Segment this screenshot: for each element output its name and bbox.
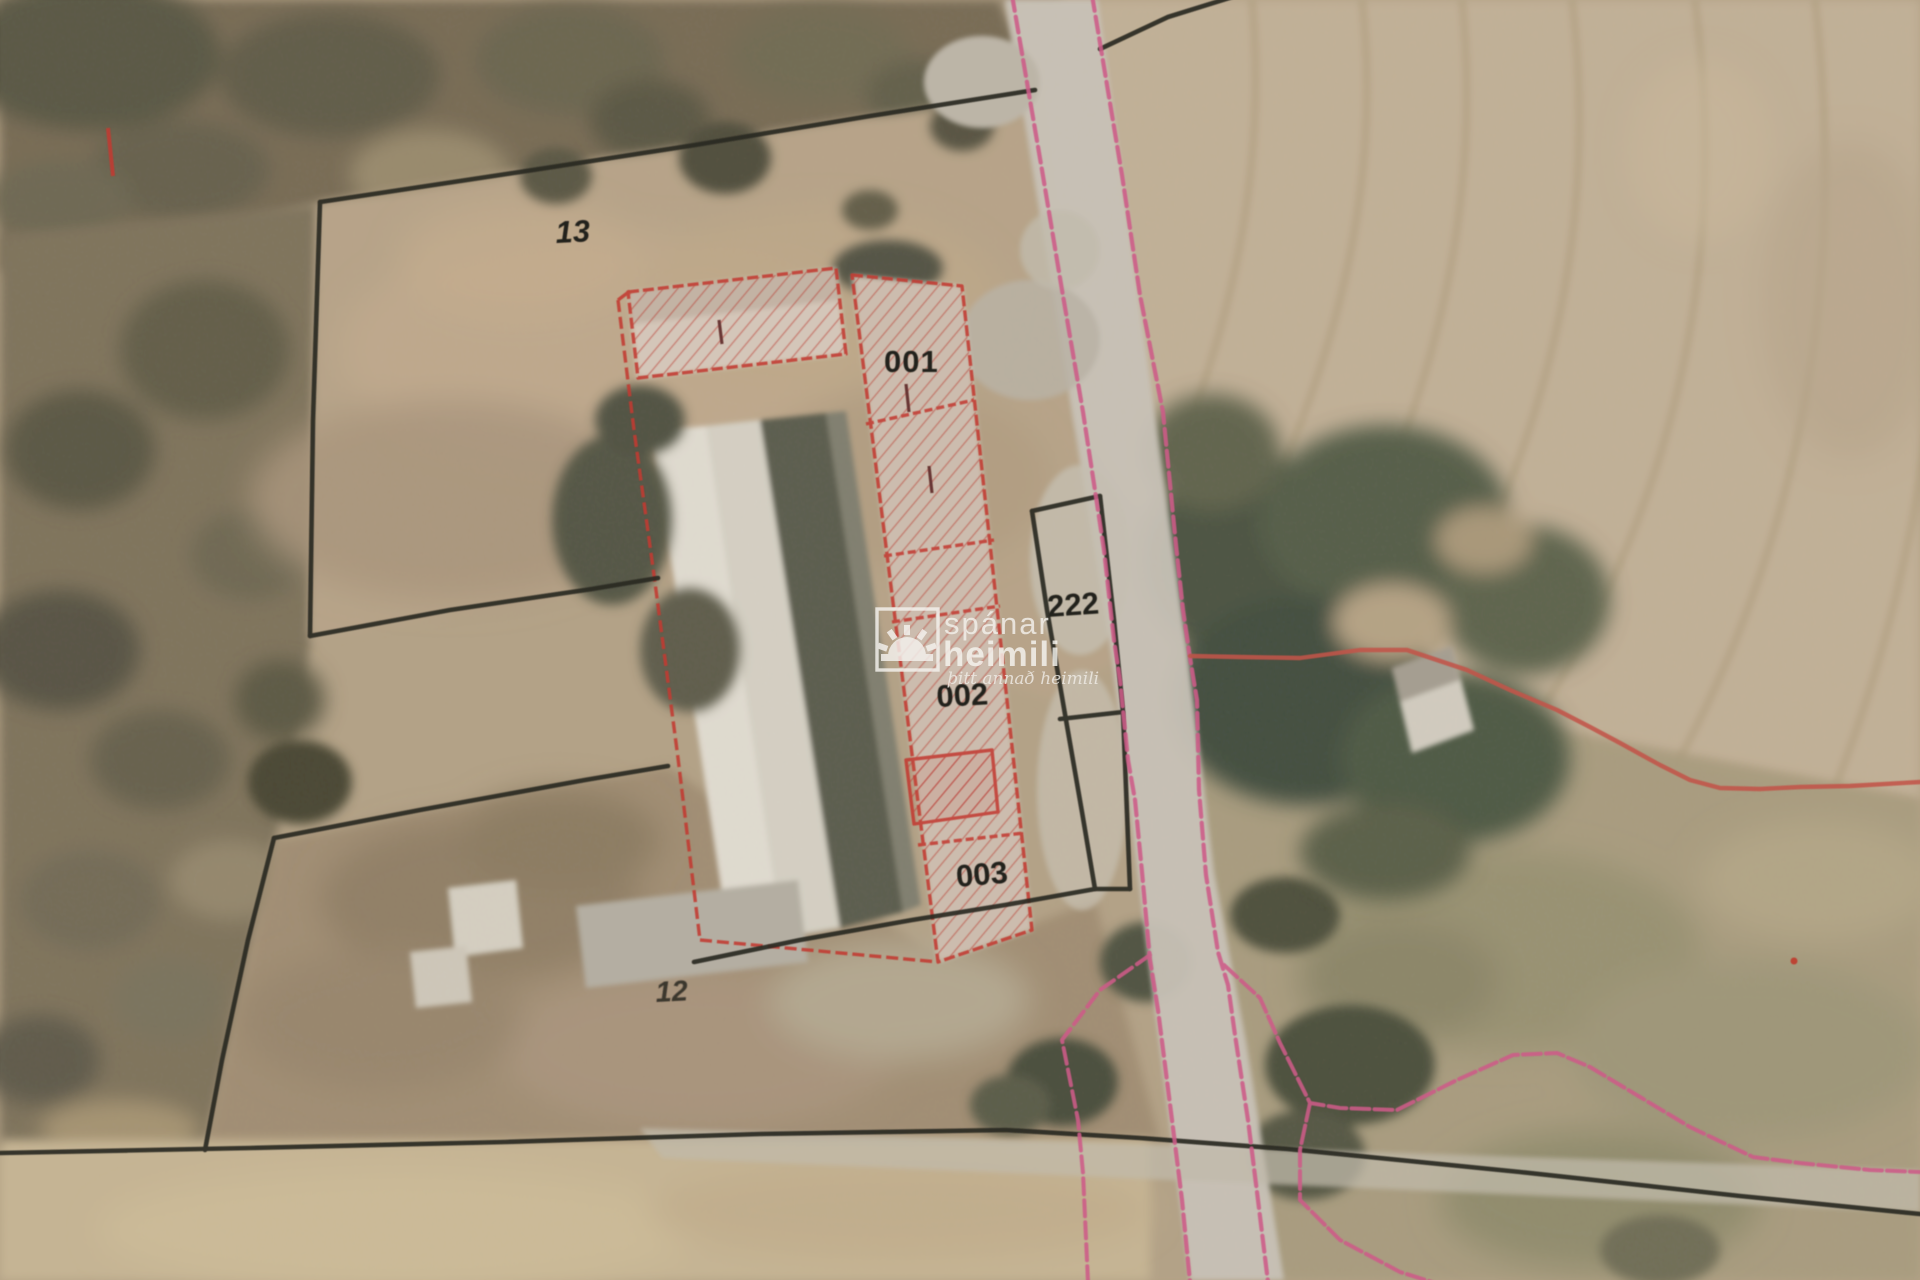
unit-label-003: 003 — [955, 855, 1010, 894]
aerial-map: 13 001 222 002 003 12 spánar heimili þit… — [0, 0, 1920, 1280]
brand-tagline: þitt annað heimili — [947, 669, 1099, 689]
red-survey-dot — [1791, 958, 1798, 965]
unit-label-001: 001 — [884, 344, 939, 379]
red-outline-unit-cell — [906, 750, 998, 824]
parcel-label-13: 13 — [555, 213, 591, 250]
parcel-label-12: 12 — [655, 975, 689, 1009]
aerial-map-canvas: 13 001 222 002 003 12 spánar heimili þit… — [0, 0, 1920, 1280]
parcel-label-222: 222 — [1046, 585, 1100, 624]
